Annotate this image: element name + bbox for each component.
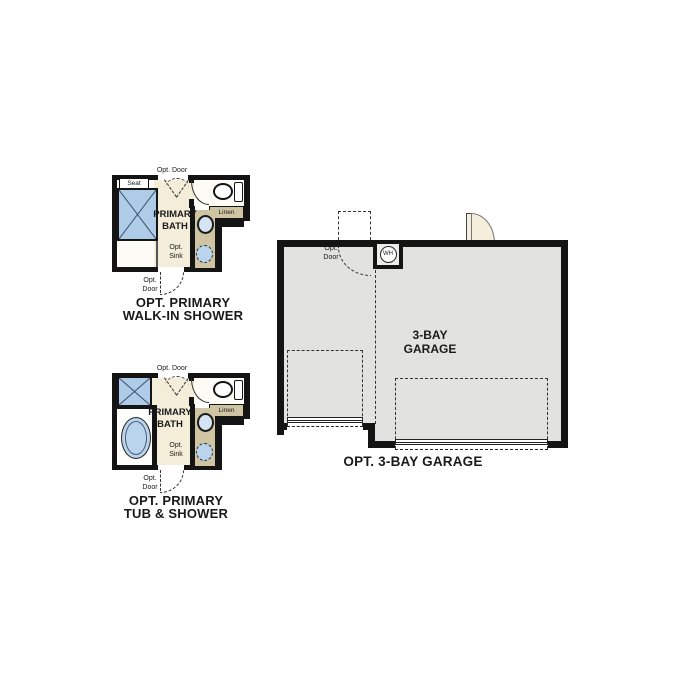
opt-door-top-label: Opt. Door bbox=[137, 166, 207, 175]
wall-counter-right bbox=[215, 218, 222, 272]
garage-wall-bottom-right-stub2 bbox=[548, 441, 568, 448]
wall-bottom-left bbox=[112, 267, 158, 272]
garage-wall-right bbox=[561, 240, 568, 448]
plan-caption-line2: WALK-IN SHOWER bbox=[105, 309, 261, 322]
room-label-line1: PRIMARY bbox=[149, 209, 201, 220]
single-bay-outline bbox=[287, 350, 363, 426]
toilet-bowl bbox=[213, 183, 233, 200]
shower-seat: Seat bbox=[119, 178, 149, 189]
toilet-tank bbox=[234, 182, 243, 202]
shower-x-icon bbox=[119, 378, 150, 405]
bay-divider-line bbox=[375, 270, 376, 424]
opt-door-bottom-swing bbox=[160, 470, 184, 493]
toilet-tank bbox=[234, 380, 243, 400]
garage-label-line1: 3-BAY bbox=[400, 329, 460, 342]
plan-3-bay-garage: Opt. Door WH 3-BAY GARAGE OPT. 3-BAY GAR… bbox=[270, 205, 582, 480]
opt-sink-label-line2: Sink bbox=[163, 252, 189, 261]
opt-door-bottom-label-line1: Opt. bbox=[138, 276, 162, 285]
shower-entry-line bbox=[156, 241, 158, 267]
garage-wall-left bbox=[277, 240, 284, 435]
opt-door-bottom-swing bbox=[160, 272, 184, 295]
garage-door-double-dash bbox=[395, 449, 548, 450]
room-label-line2: BATH bbox=[144, 419, 196, 430]
garage-wall-step bbox=[368, 423, 375, 448]
opt-door-top-label: Opt. Door bbox=[137, 364, 207, 373]
garage-wall-bottom-right-stub1 bbox=[375, 441, 395, 448]
floor-plan-canvas: Opt. Door Seat Linen PRIMARY BATH Opt. bbox=[0, 0, 687, 687]
opt-door-bottom-label-line1: Opt. bbox=[138, 474, 162, 483]
room-label-line2: BATH bbox=[149, 221, 201, 232]
water-heater-closet: WH bbox=[373, 240, 403, 269]
plan-walk-in-shower: Opt. Door Seat Linen PRIMARY BATH Opt. bbox=[105, 166, 261, 330]
optional-sink bbox=[196, 245, 213, 263]
opt-door-bottom-label-line2: Door bbox=[138, 483, 162, 492]
opt-door-opening bbox=[338, 211, 371, 240]
opt-sink-label-line2: Sink bbox=[163, 450, 189, 459]
wall-top-right bbox=[188, 175, 250, 180]
water-heater: WH bbox=[380, 246, 397, 263]
wall-linen-stub bbox=[222, 219, 244, 227]
room-label-line1: PRIMARY bbox=[144, 407, 196, 418]
wall-linen-stub bbox=[222, 417, 244, 425]
plan-caption: OPT. 3-BAY GARAGE bbox=[313, 455, 513, 469]
shower-fixture bbox=[117, 376, 152, 407]
garage-label-line2: GARAGE bbox=[395, 343, 465, 356]
plan-tub-shower: Opt. Door Linen PRIMARY BATH bbox=[105, 364, 261, 528]
sink bbox=[197, 413, 214, 432]
wall-counter-right bbox=[215, 416, 222, 470]
wall-toilet-right bbox=[244, 373, 250, 419]
garage-door-single bbox=[287, 417, 363, 423]
garage-door-double bbox=[395, 439, 548, 445]
opt-door-label-line1: Opt. bbox=[318, 244, 344, 253]
wall-toilet-right bbox=[244, 175, 250, 221]
opt-door-label-line2: Door bbox=[318, 253, 344, 262]
opt-door-bottom-label-line2: Door bbox=[138, 285, 162, 294]
entry-door-swing bbox=[471, 213, 495, 243]
garage-door-single-dash bbox=[287, 426, 363, 427]
toilet-bowl bbox=[213, 381, 233, 398]
optional-sink bbox=[196, 443, 213, 461]
opt-sink-label-line1: Opt. bbox=[163, 243, 189, 252]
garage-wall-bottom-left-stub1 bbox=[277, 423, 287, 430]
plan-caption-line2: TUB & SHOWER bbox=[98, 507, 254, 520]
wall-top-right bbox=[188, 373, 250, 378]
opt-sink-label-line1: Opt. bbox=[163, 441, 189, 450]
